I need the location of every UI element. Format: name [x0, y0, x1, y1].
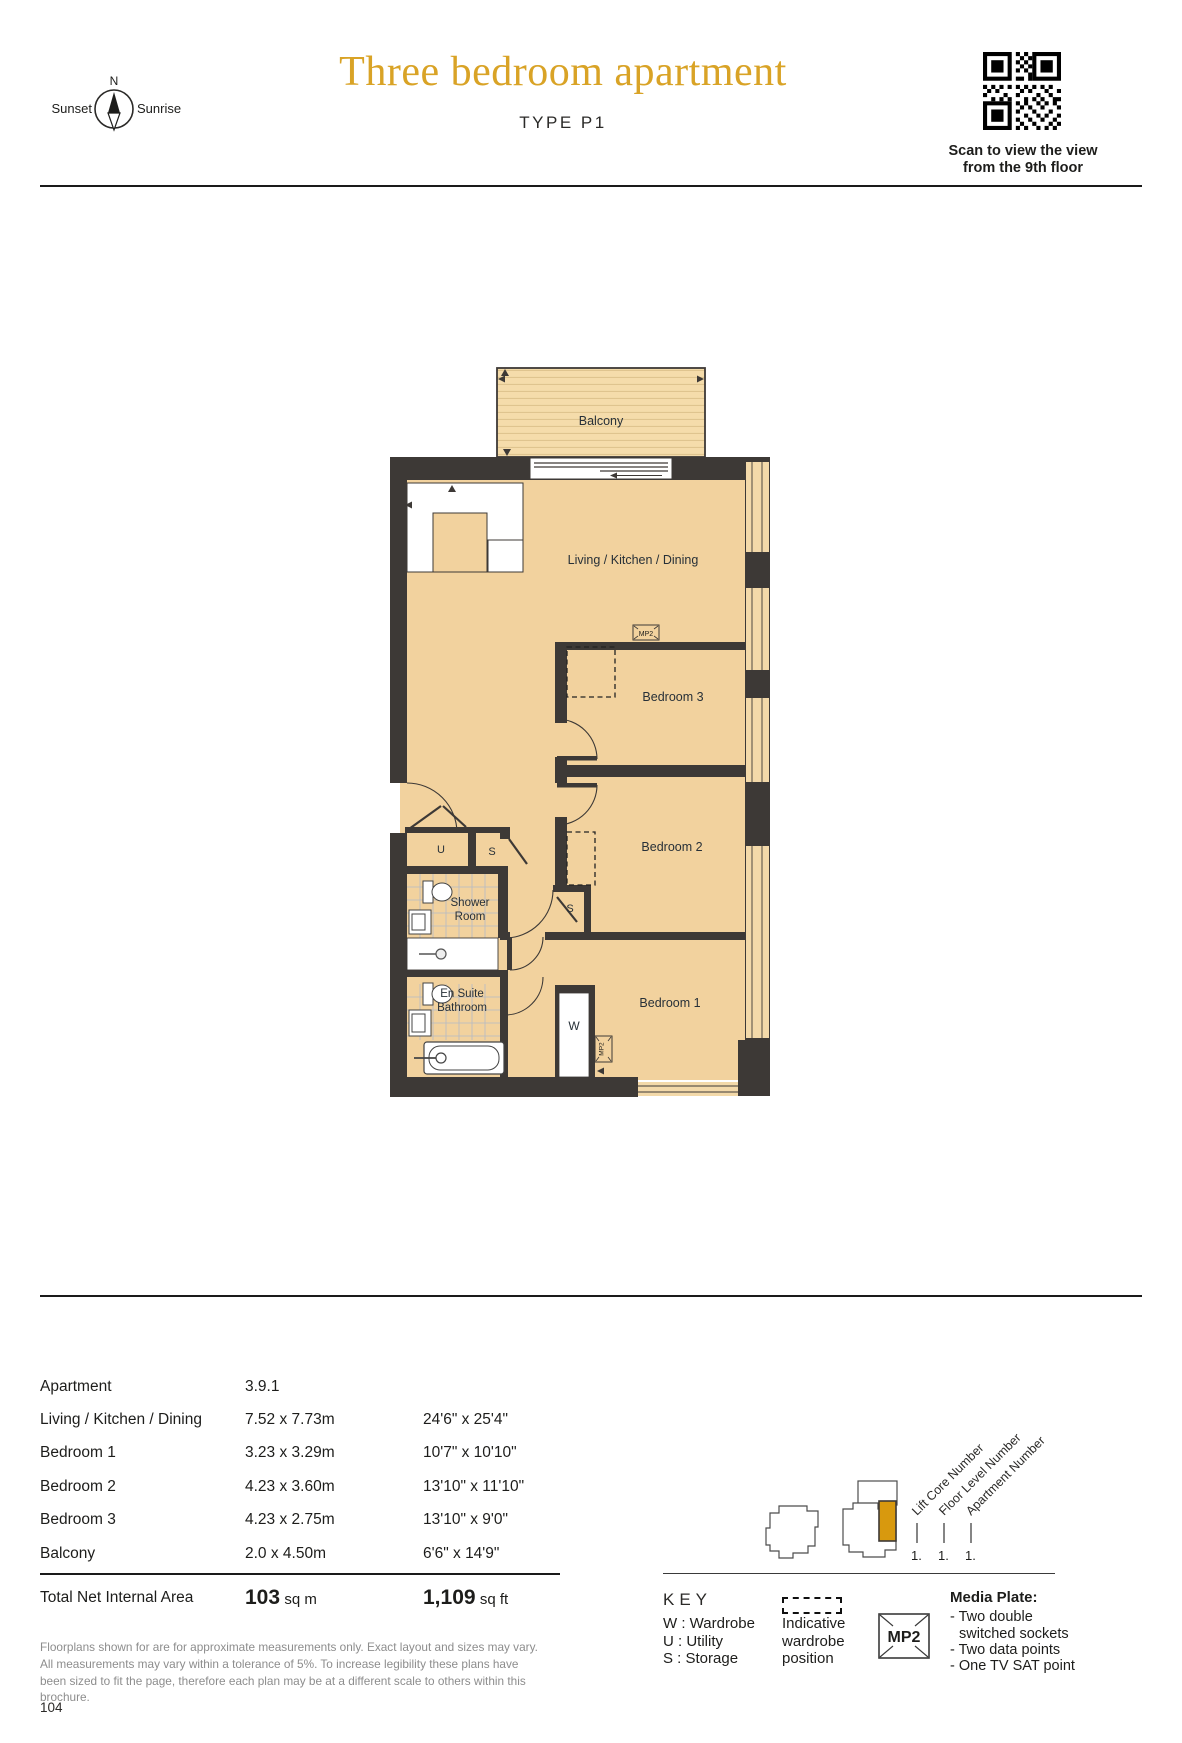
- row-metric: 3.9.1: [245, 1378, 423, 1396]
- total-imperial-unit: sq ft: [480, 1591, 508, 1608]
- indicative-note-line1: Indicative: [782, 1615, 845, 1633]
- total-label: Total Net Internal Area: [40, 1589, 245, 1607]
- bathtub: [414, 1042, 504, 1074]
- room-label-bedroom-3: Bedroom 3: [642, 690, 703, 704]
- qr-caption-line1: Scan to view the view: [947, 143, 1099, 160]
- media-plate-item: switched sockets: [950, 1626, 1075, 1642]
- room-label-shower-line2: Room: [455, 911, 486, 923]
- key-item-storage: S : Storage: [663, 1650, 755, 1668]
- locator-values: 1. 1. 1.: [911, 1548, 976, 1563]
- room-label-storage-b: S: [566, 903, 573, 915]
- table-row: Bedroom 1 3.23 x 3.29m 10'7" x 10'10": [40, 1437, 570, 1470]
- row-metric: 4.23 x 2.75m: [245, 1511, 423, 1529]
- key-items: W : Wardrobe U : Utility S : Storage: [663, 1615, 755, 1668]
- mp2-tag-bedroom3-label: MP2: [639, 631, 654, 638]
- indicative-wardrobe-icon: [782, 1597, 842, 1614]
- total-row: Total Net Internal Area 103 sq m 1,109 s…: [40, 1581, 570, 1615]
- mp2-tag-bedroom1-label: MP2: [599, 1042, 606, 1056]
- section-divider: [40, 1295, 1142, 1297]
- media-plate-item: - One TV SAT point: [950, 1658, 1075, 1674]
- mp2-tag-bedroom1: MP2: [595, 1036, 612, 1062]
- row-label: Apartment: [40, 1378, 245, 1396]
- page-title: Three bedroom apartment: [339, 48, 787, 96]
- locator-ticks: [917, 1523, 971, 1543]
- balcony-area: [497, 368, 705, 457]
- row-metric: 2.0 x 4.50m: [245, 1545, 423, 1563]
- media-plate-legend: Media Plate: - Two double switched socke…: [950, 1590, 1075, 1674]
- media-plate-item: - Two data points: [950, 1642, 1075, 1658]
- compass-sunset-label: Sunset: [52, 101, 93, 116]
- row-label: Bedroom 3: [40, 1511, 245, 1529]
- row-imperial: 24'6" x 25'4": [423, 1411, 570, 1429]
- row-metric: 4.23 x 3.60m: [245, 1478, 423, 1496]
- room-label-shower-line1: Shower: [451, 897, 490, 909]
- table-row: Apartment 3.9.1: [40, 1370, 570, 1403]
- key-item-wardrobe: W : Wardrobe: [663, 1615, 755, 1633]
- vanity-unit: [407, 938, 498, 970]
- compass: N Sunset Sunrise: [40, 63, 190, 141]
- row-metric: 7.52 x 7.73m: [245, 1411, 423, 1429]
- row-label: Living / Kitchen / Dining: [40, 1411, 245, 1429]
- compass-needle-north: [108, 92, 120, 113]
- compass-north-label: N: [110, 74, 119, 88]
- qr-caption-line2: from the 9th floor: [947, 160, 1099, 177]
- brochure-page: N Sunset Sunrise Three bedroom apartment…: [0, 0, 1182, 1743]
- table-row: Bedroom 2 4.23 x 3.60m 13'10" x 11'10": [40, 1470, 570, 1503]
- locator-value-lift-core: 1.: [911, 1548, 922, 1563]
- apartment-highlight: [879, 1501, 896, 1541]
- table-row: Balcony 2.0 x 4.50m 6'6" x 14'9": [40, 1537, 570, 1570]
- balcony-sliding-door: [530, 458, 672, 479]
- room-label-storage-a: S: [488, 846, 495, 858]
- room-label-utility: U: [437, 844, 445, 856]
- room-label-wardrobe: W: [568, 1019, 580, 1033]
- total-imperial: 1,109 sq ft: [423, 1586, 570, 1610]
- total-imperial-value: 1,109: [423, 1586, 476, 1609]
- indicative-note-line2: wardrobe: [782, 1633, 845, 1651]
- window-bottom: [638, 1082, 738, 1096]
- page-subtitle: TYPE P1: [519, 113, 606, 133]
- compass-sunrise-label: Sunrise: [137, 101, 181, 116]
- apartment-locator: Lift Core Number Floor Level Number Apar…: [690, 1420, 1070, 1580]
- row-metric: 3.23 x 3.29m: [245, 1444, 423, 1462]
- row-label: Bedroom 2: [40, 1478, 245, 1496]
- media-plate-heading: Media Plate:: [950, 1590, 1075, 1606]
- row-imperial: 13'10" x 9'0": [423, 1511, 570, 1529]
- row-label: Balcony: [40, 1545, 245, 1563]
- row-label: Bedroom 1: [40, 1444, 245, 1462]
- dimensions-table: Apartment 3.9.1 Living / Kitchen / Dinin…: [40, 1370, 570, 1570]
- qr-code: [983, 52, 1061, 130]
- building-footprint-1: [766, 1506, 818, 1558]
- total-divider: [40, 1573, 560, 1575]
- media-plate-icon-label: MP2: [888, 1629, 921, 1646]
- key-item-utility: U : Utility: [663, 1633, 755, 1651]
- table-row: Living / Kitchen / Dining 7.52 x 7.73m 2…: [40, 1403, 570, 1436]
- indicative-note-line3: position: [782, 1650, 845, 1668]
- mp2-tag-bedroom3: MP2: [633, 625, 659, 640]
- room-label-ensuite-line1: En Suite: [440, 988, 483, 1000]
- room-label-ensuite-line2: Bathroom: [437, 1002, 487, 1014]
- media-plate-item: - Two double: [950, 1609, 1075, 1625]
- row-imperial: 13'10" x 11'10": [423, 1478, 570, 1496]
- wardrobe-niche: [559, 993, 589, 1077]
- row-imperial: 10'7" x 10'10": [423, 1444, 570, 1462]
- header-divider: [40, 185, 1142, 187]
- disclaimer-text: Floorplans shown for are for approximate…: [40, 1639, 545, 1706]
- room-label-balcony: Balcony: [579, 414, 624, 428]
- locator-value-apartment-number: 1.: [965, 1548, 976, 1563]
- total-metric-value: 103: [245, 1586, 280, 1609]
- total-metric: 103 sq m: [245, 1586, 423, 1610]
- floor-plan: MP2 MP2 Balcony Living / Kitchen / Dinin…: [350, 360, 780, 1105]
- key-divider: [663, 1573, 1055, 1574]
- room-label-bedroom-1: Bedroom 1: [639, 996, 700, 1010]
- key-heading: KEY: [663, 1590, 712, 1610]
- media-plate-icon: MP2: [878, 1613, 930, 1659]
- total-metric-unit: sq m: [284, 1591, 317, 1608]
- table-row: Bedroom 3 4.23 x 2.75m 13'10" x 9'0": [40, 1504, 570, 1537]
- kitchen-counters: [407, 483, 523, 572]
- room-label-living-kitchen-dining: Living / Kitchen / Dining: [568, 553, 699, 567]
- indicative-wardrobe-note: Indicative wardrobe position: [782, 1615, 845, 1668]
- locator-labels: Lift Core Number Floor Level Number Apar…: [909, 1431, 1048, 1519]
- page-number: 104: [40, 1700, 63, 1715]
- windows-right: [746, 462, 769, 1038]
- qr-caption: Scan to view the view from the 9th floor: [947, 143, 1099, 176]
- row-imperial: 6'6" x 14'9": [423, 1545, 570, 1563]
- room-label-bedroom-2: Bedroom 2: [641, 840, 702, 854]
- locator-value-floor-level: 1.: [938, 1548, 949, 1563]
